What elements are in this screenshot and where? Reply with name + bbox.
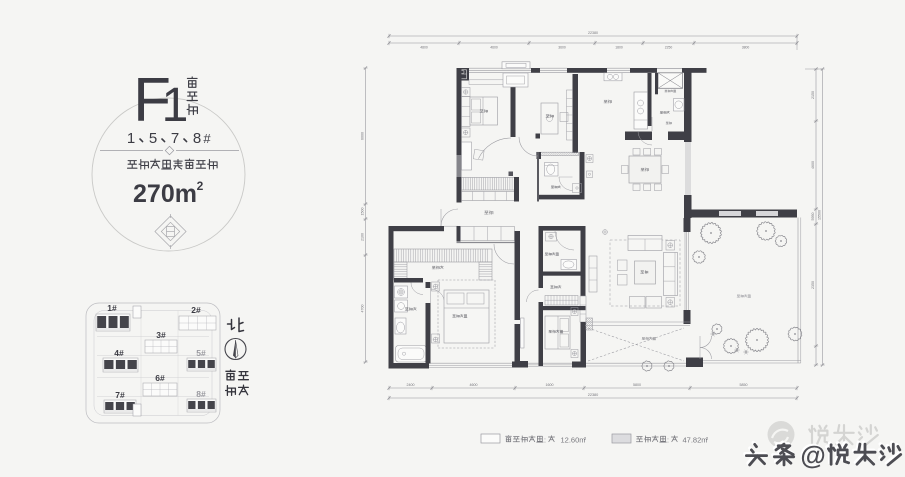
svg-text:2#: 2# xyxy=(191,305,201,315)
svg-text:1500: 1500 xyxy=(361,208,365,216)
svg-text:5850: 5850 xyxy=(740,383,748,387)
svg-text:4800: 4800 xyxy=(420,46,428,50)
svg-text:@: @ xyxy=(800,440,825,470)
svg-text:2350: 2350 xyxy=(811,281,815,289)
svg-text::: : xyxy=(544,438,546,445)
svg-text:1#: 1# xyxy=(107,303,117,313)
svg-text:8: 8 xyxy=(193,130,201,147)
svg-text::: : xyxy=(667,438,669,445)
svg-text:22380: 22380 xyxy=(588,31,598,35)
svg-text:1800: 1800 xyxy=(615,46,623,50)
svg-text:6000: 6000 xyxy=(361,132,365,140)
svg-text:1: 1 xyxy=(127,130,135,147)
svg-text:4#: 4# xyxy=(114,348,124,358)
svg-text:1600: 1600 xyxy=(546,383,554,387)
svg-text:2250: 2250 xyxy=(665,46,673,50)
svg-text:2400: 2400 xyxy=(407,383,415,387)
svg-text:5#: 5# xyxy=(196,348,206,358)
svg-text:4600: 4600 xyxy=(470,383,478,387)
svg-text:1: 1 xyxy=(162,79,189,132)
svg-text:6#: 6# xyxy=(155,373,165,383)
svg-text:22380: 22380 xyxy=(588,393,599,397)
svg-text:47.82m: 47.82m xyxy=(682,436,707,445)
svg-text:270m: 270m xyxy=(133,180,197,208)
svg-text:12.60m: 12.60m xyxy=(560,436,585,445)
svg-text:2150: 2150 xyxy=(811,91,815,99)
svg-text:7#: 7# xyxy=(115,390,125,400)
svg-text:2100: 2100 xyxy=(361,233,365,241)
svg-text:4700: 4700 xyxy=(361,305,365,313)
svg-text:15500: 15500 xyxy=(818,210,822,220)
svg-text:3800: 3800 xyxy=(742,46,750,50)
svg-text:2: 2 xyxy=(584,436,587,441)
svg-text:5950: 5950 xyxy=(811,213,815,221)
svg-text:#: # xyxy=(203,131,211,146)
svg-text:3600: 3600 xyxy=(558,46,566,50)
svg-text:4600: 4600 xyxy=(811,161,815,169)
svg-text:4600: 4600 xyxy=(490,46,498,50)
svg-text:3#: 3# xyxy=(156,330,166,340)
svg-text:2: 2 xyxy=(197,179,204,193)
svg-text:8#: 8# xyxy=(196,389,206,399)
svg-text:2: 2 xyxy=(706,436,709,441)
svg-text:7: 7 xyxy=(171,130,179,147)
svg-text:5800: 5800 xyxy=(633,383,641,387)
svg-text:5: 5 xyxy=(149,130,157,147)
